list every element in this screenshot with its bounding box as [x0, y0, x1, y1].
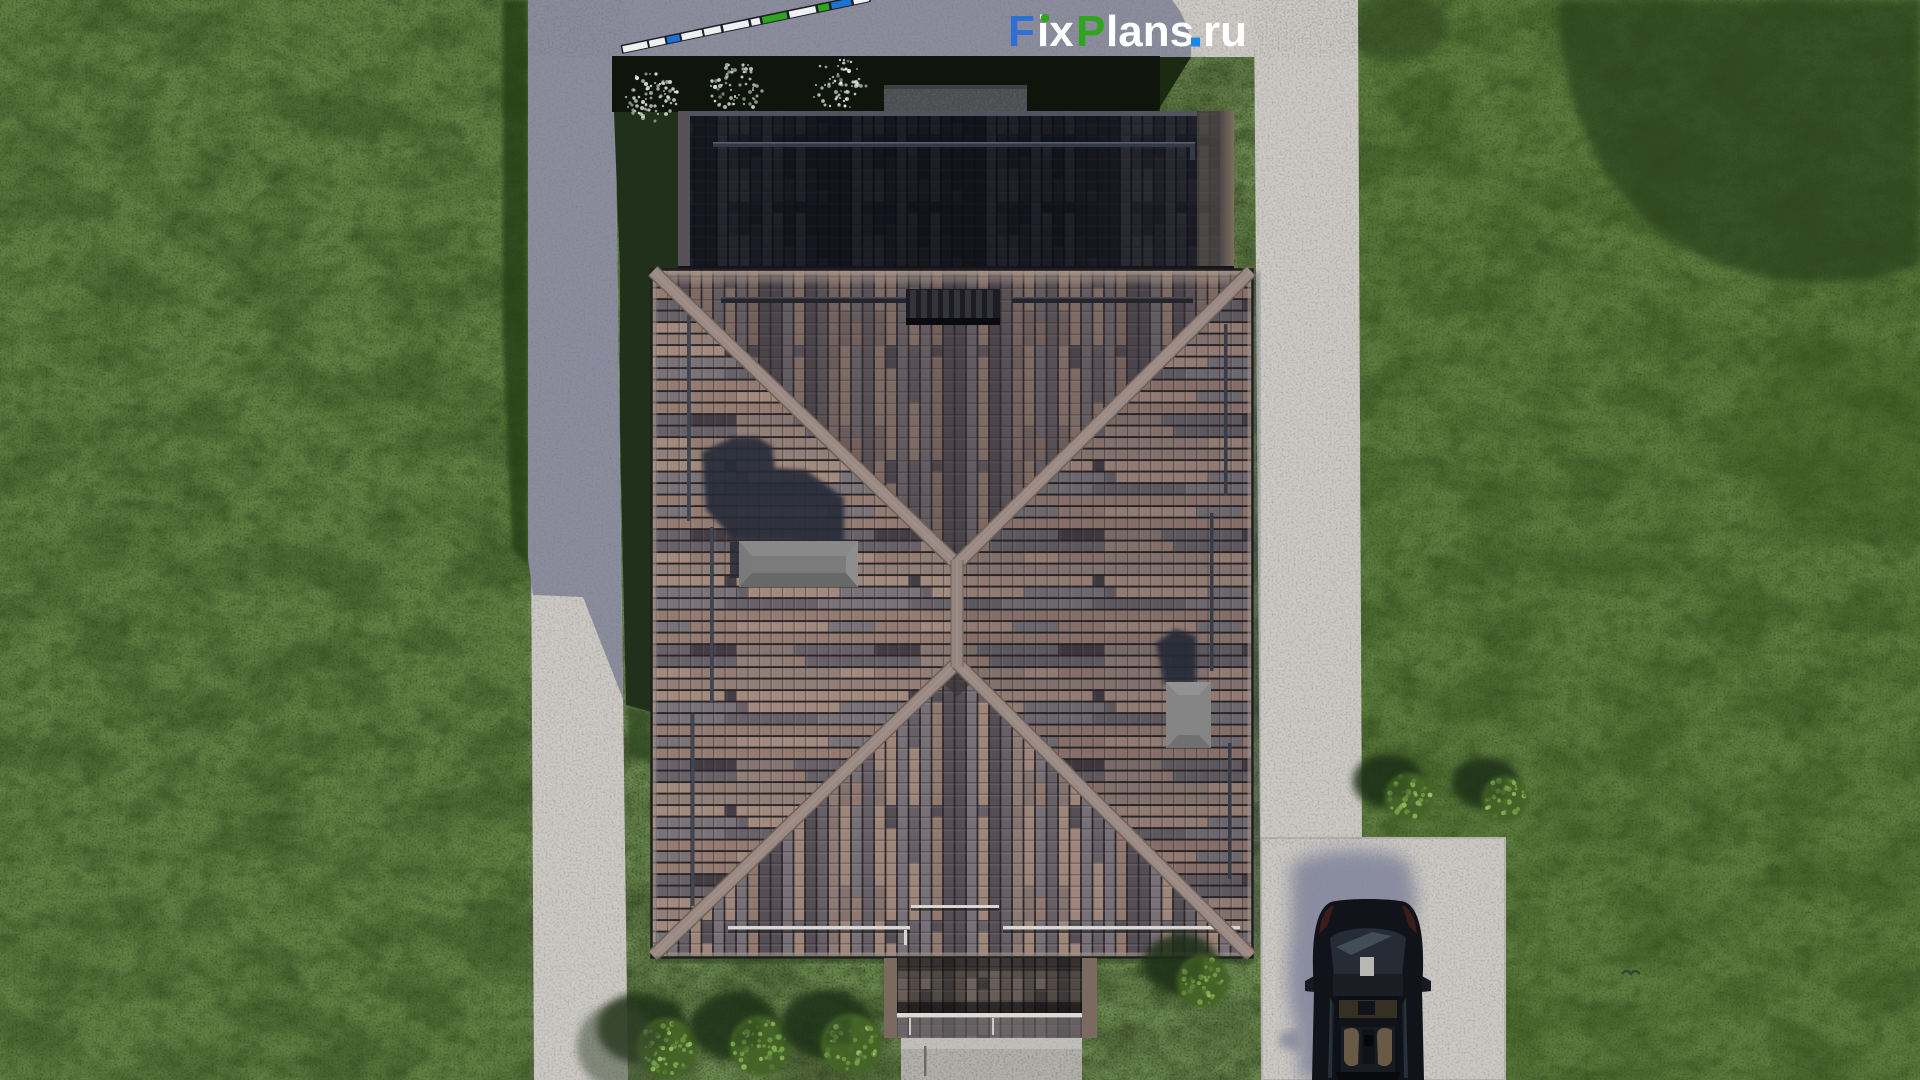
svg-text:P: P	[1076, 7, 1105, 56]
svg-text:ru: ru	[1203, 7, 1247, 56]
svg-text:lans: lans	[1106, 7, 1194, 56]
svg-text:ix: ix	[1037, 7, 1074, 56]
svg-text:F: F	[1008, 7, 1035, 56]
